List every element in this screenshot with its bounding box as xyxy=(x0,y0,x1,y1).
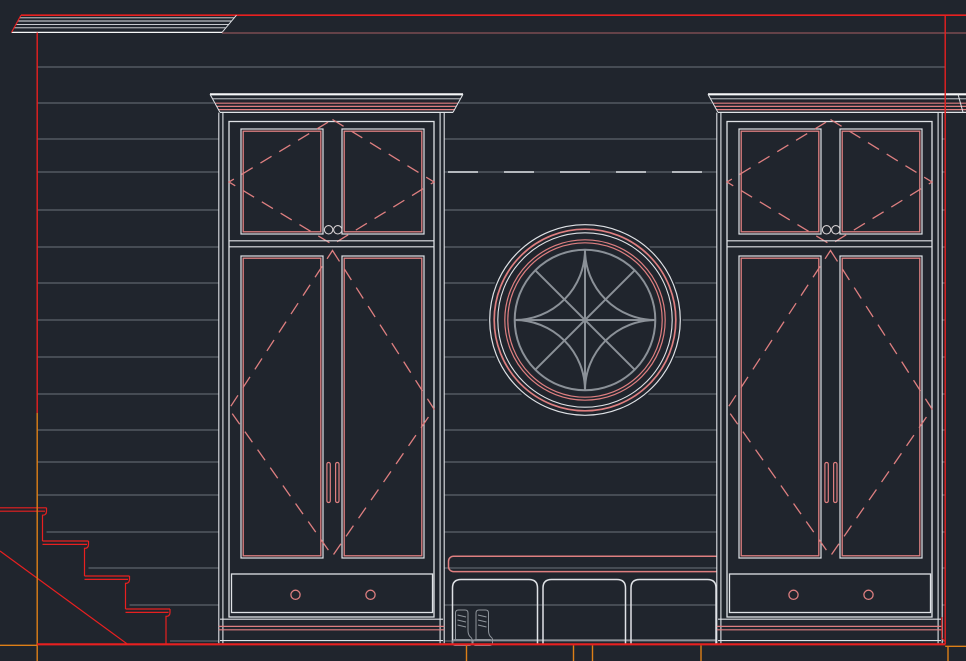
ceiling-crown-molding xyxy=(12,15,966,33)
cad-drawing-viewport[interactable]: CAD model-space viewport — interior elev… xyxy=(0,0,966,661)
cubby xyxy=(543,580,626,645)
right-cabinet xyxy=(717,112,943,644)
cubby xyxy=(453,580,538,645)
elevation-drawing: CAD model-space viewport — interior elev… xyxy=(0,0,966,661)
left-cabinet-crown xyxy=(209,93,464,113)
left-cabinet xyxy=(219,112,445,644)
right-cabinet-crown xyxy=(707,93,966,113)
staircase xyxy=(0,508,170,644)
round-window xyxy=(488,223,683,418)
window-muntins xyxy=(515,250,656,391)
datum-ticks xyxy=(467,646,949,661)
bench-seat xyxy=(449,556,721,571)
bench xyxy=(449,556,721,645)
datum-extension-lines xyxy=(0,645,966,661)
cubby xyxy=(631,580,716,645)
